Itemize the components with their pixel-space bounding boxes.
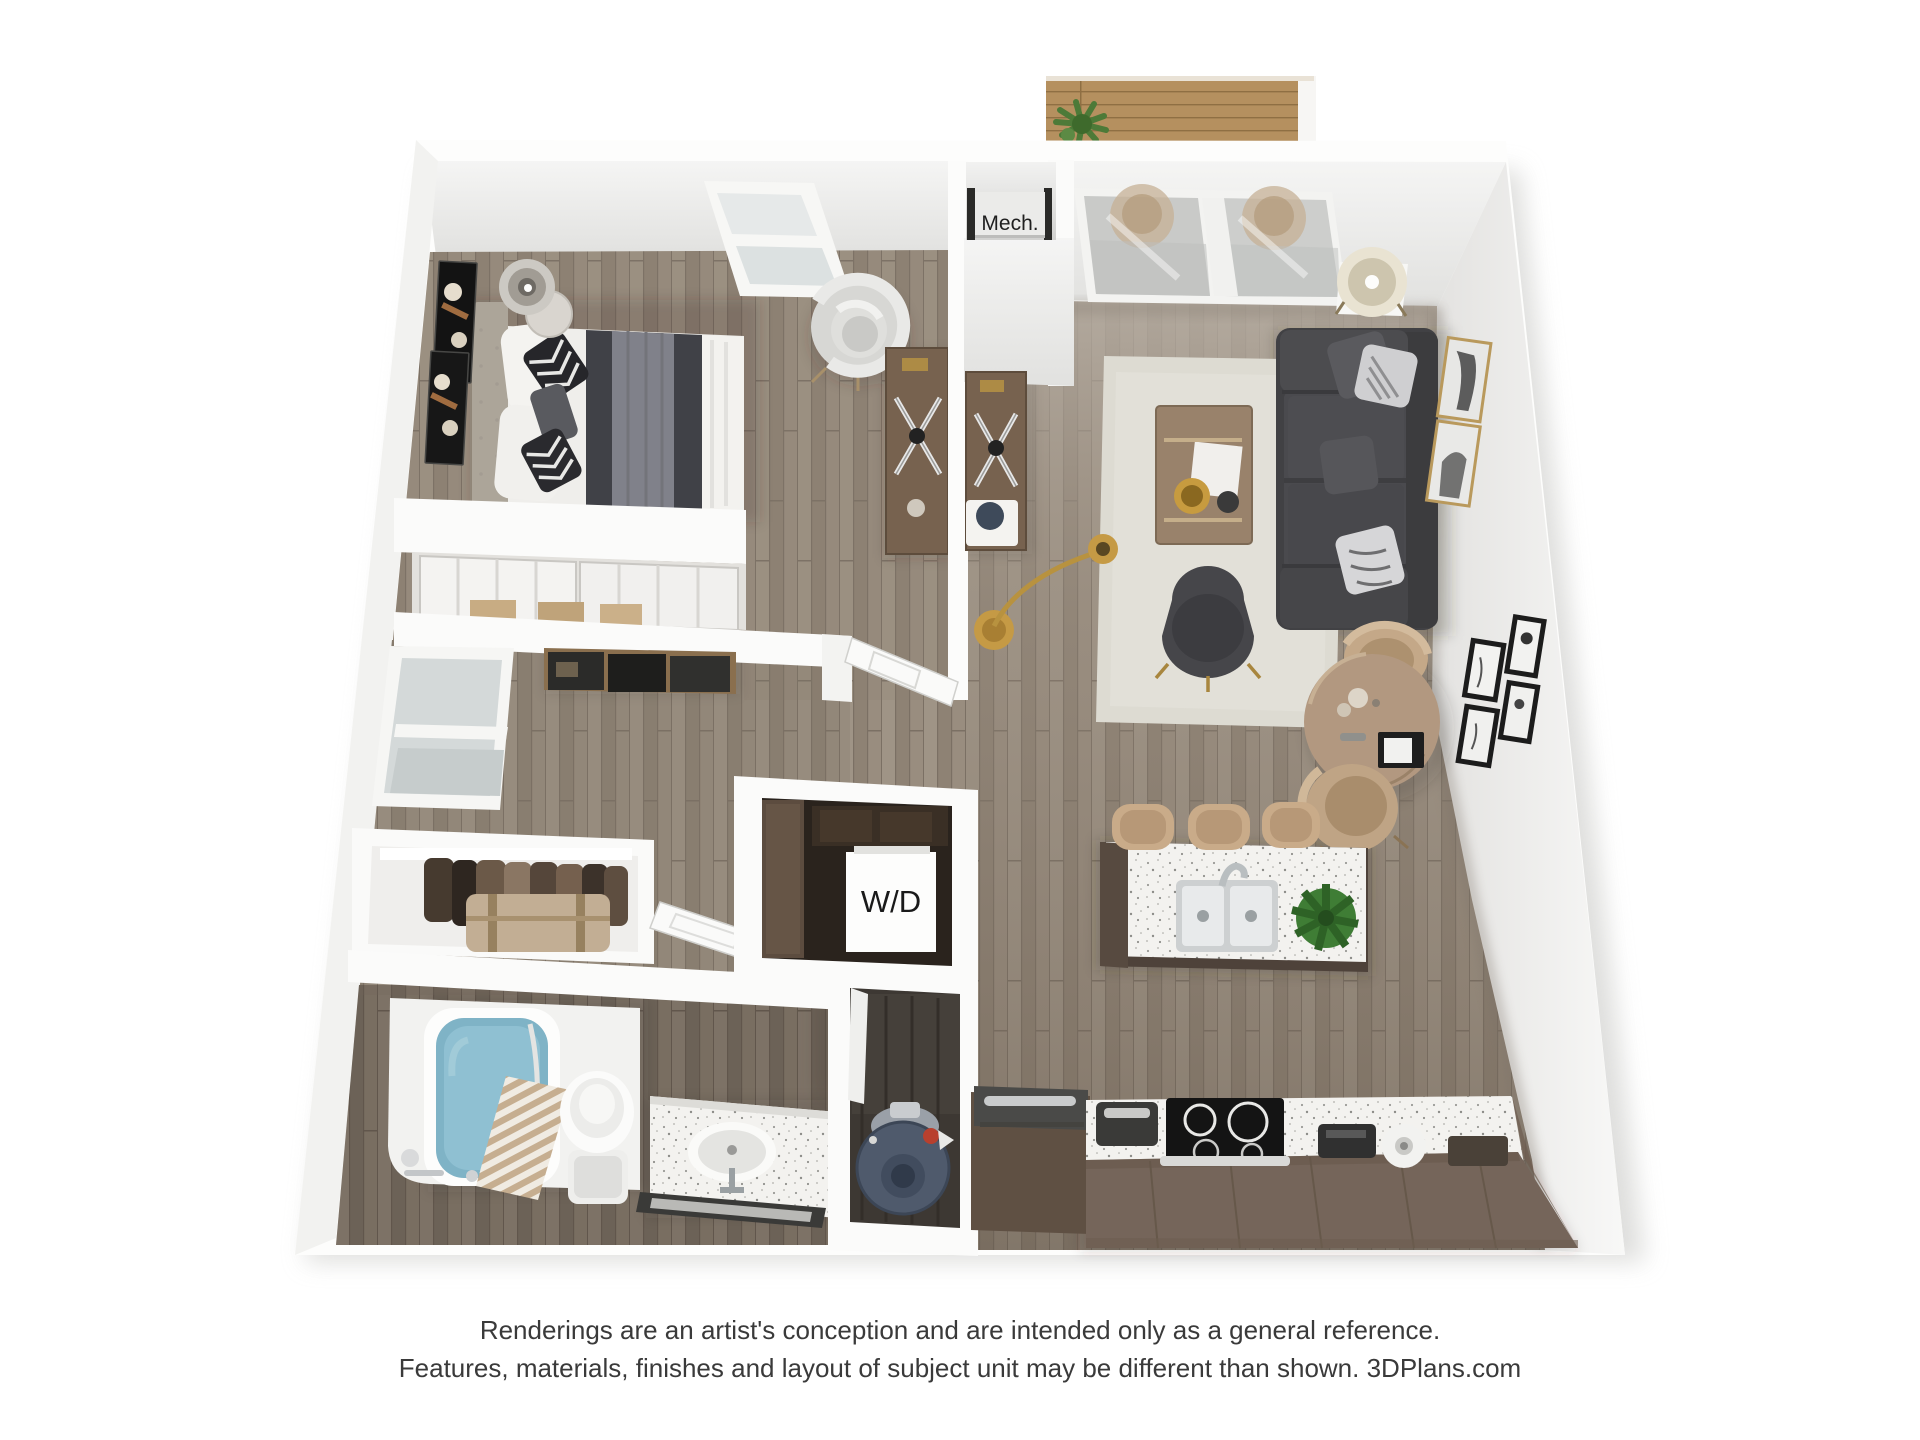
svg-text:W/D: W/D — [861, 884, 921, 919]
svg-text:Renderings are an artist's con: Renderings are an artist's conception an… — [480, 1315, 1440, 1345]
svg-text:Features, materials, finishes: Features, materials, finishes and layout… — [399, 1353, 1521, 1383]
svg-text:Mech.: Mech. — [981, 212, 1038, 235]
